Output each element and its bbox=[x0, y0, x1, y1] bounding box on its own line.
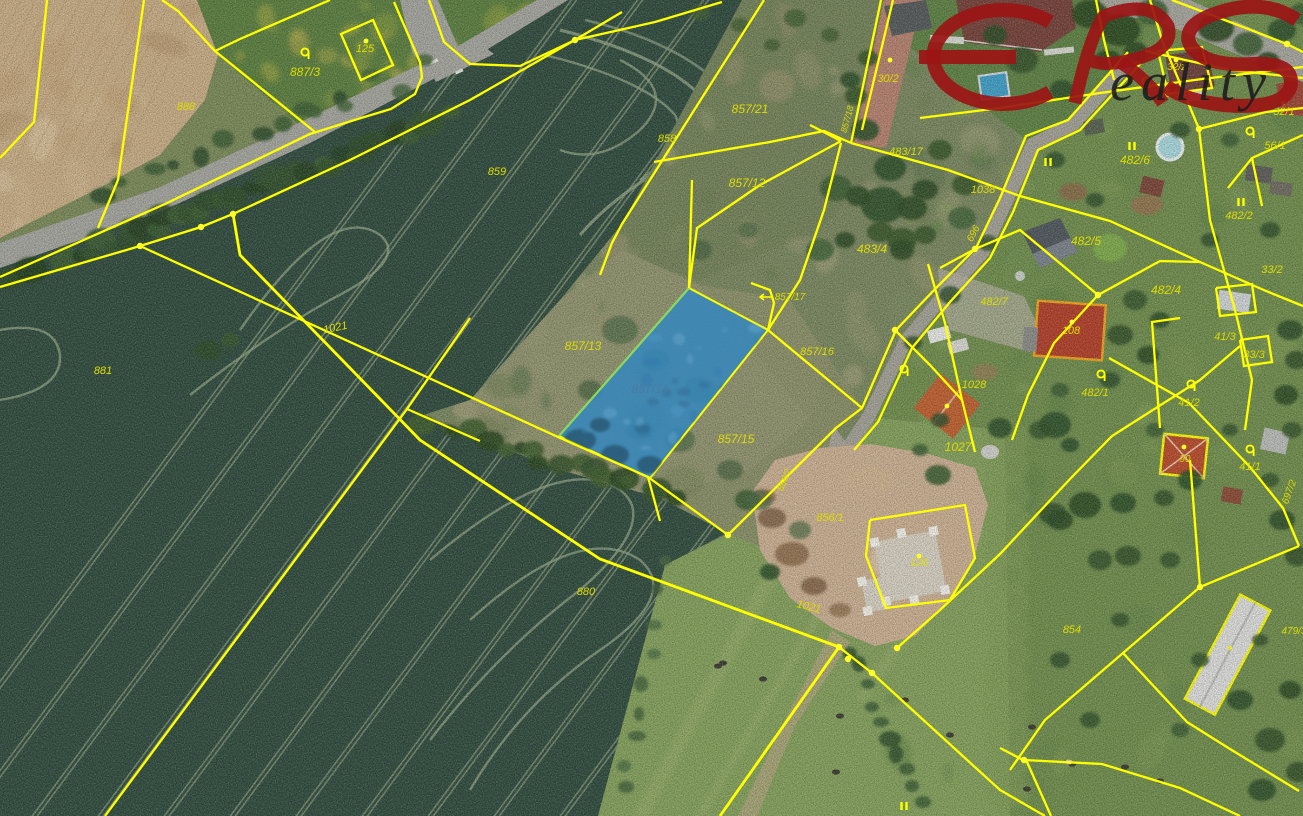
svg-text:887/3: 887/3 bbox=[290, 65, 320, 79]
svg-text:1027: 1027 bbox=[945, 440, 973, 454]
svg-text:479/3: 479/3 bbox=[1281, 626, 1303, 637]
svg-text:857/12: 857/12 bbox=[729, 176, 766, 190]
svg-text:41/3: 41/3 bbox=[1214, 331, 1236, 343]
svg-text:1038: 1038 bbox=[971, 184, 996, 196]
svg-text:56/1: 56/1 bbox=[1264, 140, 1285, 152]
svg-text:857/17: 857/17 bbox=[775, 292, 806, 303]
svg-text:33/2: 33/2 bbox=[1261, 264, 1282, 276]
svg-text:eality: eality bbox=[1110, 52, 1266, 112]
svg-text:857/13: 857/13 bbox=[565, 339, 602, 353]
svg-text:482/2: 482/2 bbox=[1225, 210, 1253, 222]
svg-text:90: 90 bbox=[1179, 454, 1191, 465]
svg-text:856/1: 856/1 bbox=[816, 512, 844, 524]
svg-text:108: 108 bbox=[1062, 325, 1081, 337]
svg-text:854: 854 bbox=[1063, 624, 1081, 636]
svg-text:858: 858 bbox=[658, 133, 677, 145]
svg-text:30/2: 30/2 bbox=[877, 73, 898, 85]
svg-text:857/14: 857/14 bbox=[632, 382, 669, 396]
svg-text:857/21: 857/21 bbox=[732, 102, 769, 116]
svg-text:125: 125 bbox=[356, 43, 375, 55]
svg-text:483/17: 483/17 bbox=[889, 146, 924, 158]
svg-text:857/15: 857/15 bbox=[718, 432, 755, 446]
svg-text:482/1: 482/1 bbox=[1081, 387, 1109, 399]
svg-text:482/7: 482/7 bbox=[980, 296, 1008, 308]
svg-text:888: 888 bbox=[177, 101, 196, 113]
svg-text:126: 126 bbox=[910, 557, 929, 569]
svg-text:859: 859 bbox=[488, 166, 506, 178]
svg-text:482/6: 482/6 bbox=[1120, 153, 1150, 167]
svg-text:1028: 1028 bbox=[962, 379, 987, 391]
svg-text:41/2: 41/2 bbox=[1178, 397, 1199, 409]
svg-text:483/4: 483/4 bbox=[857, 242, 887, 256]
svg-text:33/3: 33/3 bbox=[1243, 349, 1265, 361]
svg-text:881: 881 bbox=[94, 365, 112, 377]
svg-text:482/4: 482/4 bbox=[1151, 283, 1181, 297]
svg-text:857/16: 857/16 bbox=[800, 346, 835, 358]
svg-text:41/1: 41/1 bbox=[1239, 461, 1260, 473]
svg-text:482/5: 482/5 bbox=[1071, 234, 1101, 248]
svg-text:880: 880 bbox=[577, 586, 596, 598]
